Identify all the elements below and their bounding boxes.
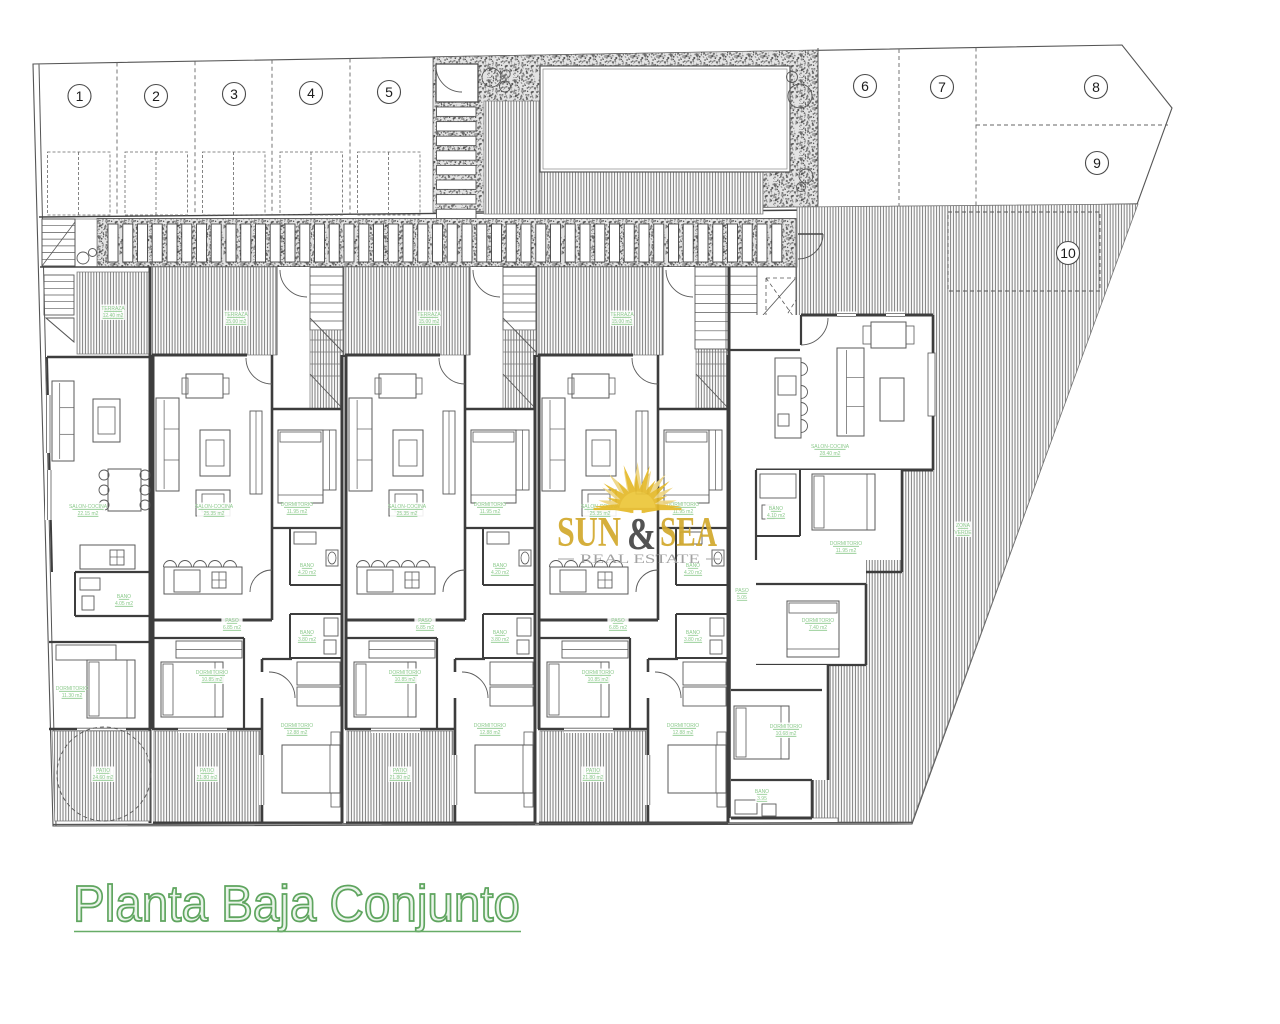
svg-text:7: 7 bbox=[938, 79, 946, 95]
svg-text:4: 4 bbox=[307, 85, 315, 101]
svg-text:8: 8 bbox=[1092, 79, 1100, 95]
svg-text:REAL ESTATE: REAL ESTATE bbox=[580, 552, 701, 566]
svg-text:3: 3 bbox=[230, 86, 238, 102]
svg-text:SEA: SEA bbox=[660, 510, 717, 556]
svg-text:SUN: SUN bbox=[557, 510, 621, 556]
svg-text:6: 6 bbox=[861, 78, 869, 94]
svg-text:2: 2 bbox=[152, 88, 160, 104]
svg-text:9: 9 bbox=[1093, 155, 1101, 171]
svg-text:10: 10 bbox=[1060, 245, 1076, 261]
svg-text:Planta Baja Conjunto: Planta Baja Conjunto bbox=[73, 875, 520, 932]
svg-text:5: 5 bbox=[385, 84, 393, 100]
svg-text:1: 1 bbox=[76, 88, 84, 104]
